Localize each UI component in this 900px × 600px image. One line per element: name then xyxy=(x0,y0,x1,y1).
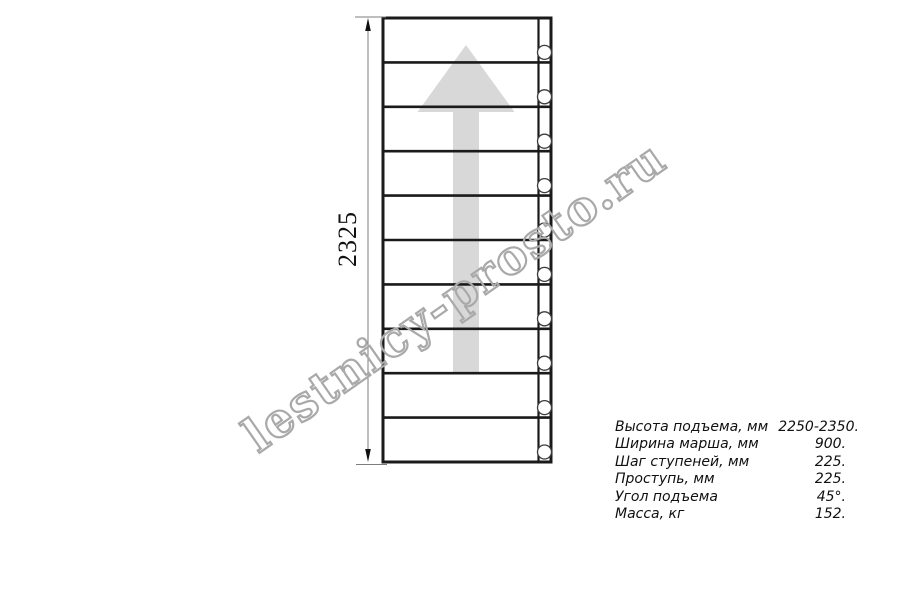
spec-table: Высота подъема, мм 2250-2350. Ширина мар… xyxy=(615,419,846,523)
spec-label: Проступь, мм xyxy=(615,471,715,488)
spec-row: Ширина марша, мм 900. xyxy=(615,436,846,453)
spec-value: 225. xyxy=(815,471,846,488)
spec-value: 45°. xyxy=(817,489,846,506)
spec-value: 225. xyxy=(815,454,846,471)
mount-hole xyxy=(538,45,552,59)
spec-row: Шаг ступеней, мм 225. xyxy=(615,454,846,471)
dimension-value: 2325 xyxy=(333,211,362,267)
spec-value: 900. xyxy=(815,436,846,453)
mount-hole xyxy=(538,445,552,459)
mount-hole xyxy=(538,90,552,104)
spec-value: 152. xyxy=(815,506,846,523)
spec-label: Шаг ступеней, мм xyxy=(615,454,749,471)
dimension-arrowhead-top xyxy=(365,18,371,31)
spec-row: Проступь, мм 225. xyxy=(615,471,846,488)
mount-hole xyxy=(538,401,552,415)
mount-hole xyxy=(538,134,552,148)
spec-label: Масса, кг xyxy=(615,506,684,523)
mount-hole xyxy=(538,179,552,193)
spec-label: Высота подъема, мм xyxy=(615,419,768,436)
spec-row: Угол подъема 45°. xyxy=(615,489,846,506)
dimension-arrowhead-bottom xyxy=(365,449,371,462)
mount-hole xyxy=(538,312,552,326)
spec-value: 2250-2350. xyxy=(778,419,859,436)
spec-row: Масса, кг 152. xyxy=(615,506,846,523)
spec-label: Угол подъема xyxy=(615,489,718,506)
spec-label: Ширина марша, мм xyxy=(615,436,759,453)
spec-row: Высота подъема, мм 2250-2350. xyxy=(615,419,846,436)
mount-hole xyxy=(538,356,552,370)
